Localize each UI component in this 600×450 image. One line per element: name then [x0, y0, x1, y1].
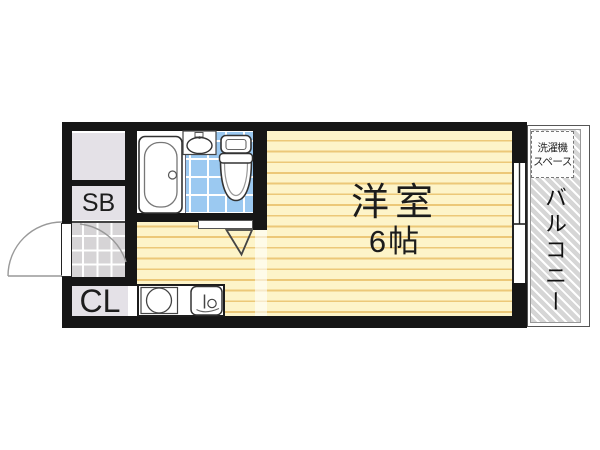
bathroom-floor [137, 131, 185, 213]
main-room-size: 6帖 [277, 224, 513, 260]
toilet-tile-floor [185, 131, 254, 213]
laundry-label-line1: 洗濯機 [538, 141, 568, 155]
kitchen-room-passage [255, 230, 267, 316]
main-room-label: 洋室 6帖 [277, 182, 513, 260]
entrance-genkan [70, 223, 127, 277]
wall-right-top [512, 122, 527, 163]
washing-machine-space: 洗濯機 スペース [531, 131, 574, 178]
balcony-window [512, 163, 527, 283]
wall-divider-left-column [125, 122, 137, 286]
wall-left-upper [62, 122, 72, 224]
main-room-name: 洋室 [277, 182, 513, 224]
upper-storage-room [72, 133, 125, 180]
balcony-label: バルコニー [529, 182, 579, 320]
wall-bottom [62, 316, 527, 328]
wall-right-bottom [512, 283, 527, 328]
kitchen-counter [137, 284, 225, 317]
closet-label: CL [72, 286, 128, 316]
floor-plan: 洗濯機 スペース バルコニー 洋室 6帖 SB CL [0, 0, 600, 450]
bathroom-door [198, 220, 253, 229]
shoe-box-label: SB [72, 186, 125, 220]
entrance-door-leaf [61, 223, 72, 277]
laundry-label-line2: スペース [533, 155, 572, 169]
